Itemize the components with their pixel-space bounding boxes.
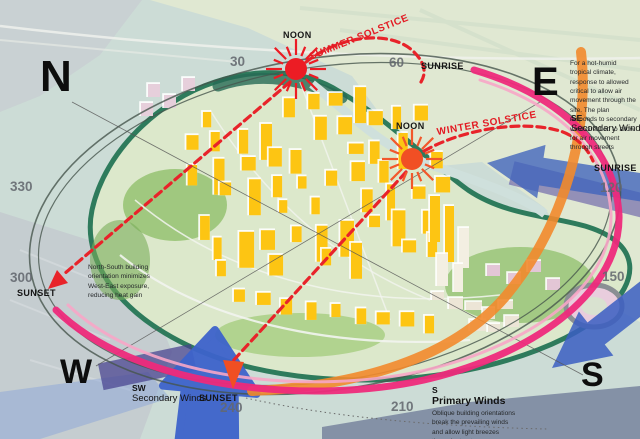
building-block: [437, 254, 448, 286]
building-block: [377, 312, 390, 324]
building-block: [200, 216, 210, 240]
building-block: [279, 200, 287, 213]
s-wind-note: Oblique building orientations break the …: [432, 409, 520, 439]
building-block: [308, 94, 319, 109]
building-block: [432, 292, 444, 300]
sw-wind-label: Secondary Winds: [132, 393, 206, 404]
building-block: [349, 143, 364, 153]
building-block: [311, 197, 319, 214]
building-block: [269, 148, 282, 166]
building-block: [505, 316, 519, 327]
building-block: [331, 304, 340, 317]
building-block: [430, 196, 440, 242]
building-block: [315, 117, 327, 140]
building-block: [298, 176, 307, 188]
building-block: [257, 293, 271, 305]
building-block: [326, 171, 337, 186]
building-block: [425, 316, 434, 334]
building-block: [403, 240, 416, 252]
degree-240: 240: [220, 400, 243, 415]
building-block: [307, 302, 317, 320]
building-block: [217, 261, 226, 276]
compass-west: W: [60, 355, 92, 389]
orientation-note: North-South building orientation minimiz…: [88, 263, 168, 300]
building-block: [239, 130, 248, 154]
building-block: [369, 111, 383, 125]
winter-sun-icon: [382, 129, 442, 189]
building-block: [466, 302, 482, 310]
sw-wind-abbr: SW: [132, 383, 206, 393]
building-block: [273, 176, 282, 197]
degree-60: 60: [389, 55, 404, 70]
sunset-west-label: SUNSET: [17, 288, 56, 298]
compass-east: E: [532, 62, 559, 102]
building-block: [269, 255, 283, 276]
building-block: [547, 279, 560, 290]
sw-wind-caption: SW Secondary Winds: [132, 383, 206, 405]
building-block: [329, 93, 343, 106]
s-wind-caption: S Primary Winds Oblique building orienta…: [432, 385, 520, 439]
building-block: [292, 226, 302, 242]
degree-330: 330: [10, 179, 33, 194]
degree-150: 150: [602, 269, 625, 284]
building-block: [242, 157, 256, 170]
building-block: [234, 289, 245, 301]
building-block: [351, 243, 362, 279]
building-block: [355, 87, 366, 123]
noon-winter-label: NOON: [396, 121, 425, 131]
building-block: [459, 228, 469, 268]
degree-30: 30: [230, 54, 245, 69]
climate-note: For a hot-humid tropical climate, respon…: [570, 59, 638, 153]
building-block: [436, 177, 450, 193]
sun-wind-analysis-diagram: N E W S NOON NOON SUMMER SOLSTICE WINTER…: [0, 0, 640, 439]
building-block: [261, 230, 275, 250]
compass-south: S: [581, 358, 604, 392]
building-block: [239, 232, 254, 268]
building-block: [284, 98, 295, 117]
sunrise-southeast-label: SUNRISE: [594, 163, 637, 173]
building-block: [487, 265, 500, 276]
building-block: [369, 216, 380, 227]
sunrise-east-label: SUNRISE: [421, 61, 464, 71]
building-block: [413, 186, 426, 198]
degree-120: 120: [600, 180, 623, 195]
building-block: [203, 112, 211, 127]
building-block: [357, 308, 367, 324]
building-block: [379, 161, 388, 183]
building-block: [186, 135, 198, 150]
building-block: [148, 84, 160, 97]
building-block: [214, 238, 222, 260]
degree-300: 300: [10, 270, 33, 285]
building-block: [338, 117, 352, 134]
building-block: [415, 106, 428, 121]
s-wind-abbr: S: [432, 385, 520, 395]
building-block: [351, 162, 365, 181]
building-block: [290, 150, 301, 174]
compass-north: N: [40, 55, 72, 99]
building-block: [401, 312, 415, 326]
building-block: [454, 264, 463, 292]
noon-summer-label: NOON: [283, 30, 312, 40]
s-wind-label: Primary Winds: [432, 395, 520, 408]
degree-210: 210: [391, 399, 414, 414]
